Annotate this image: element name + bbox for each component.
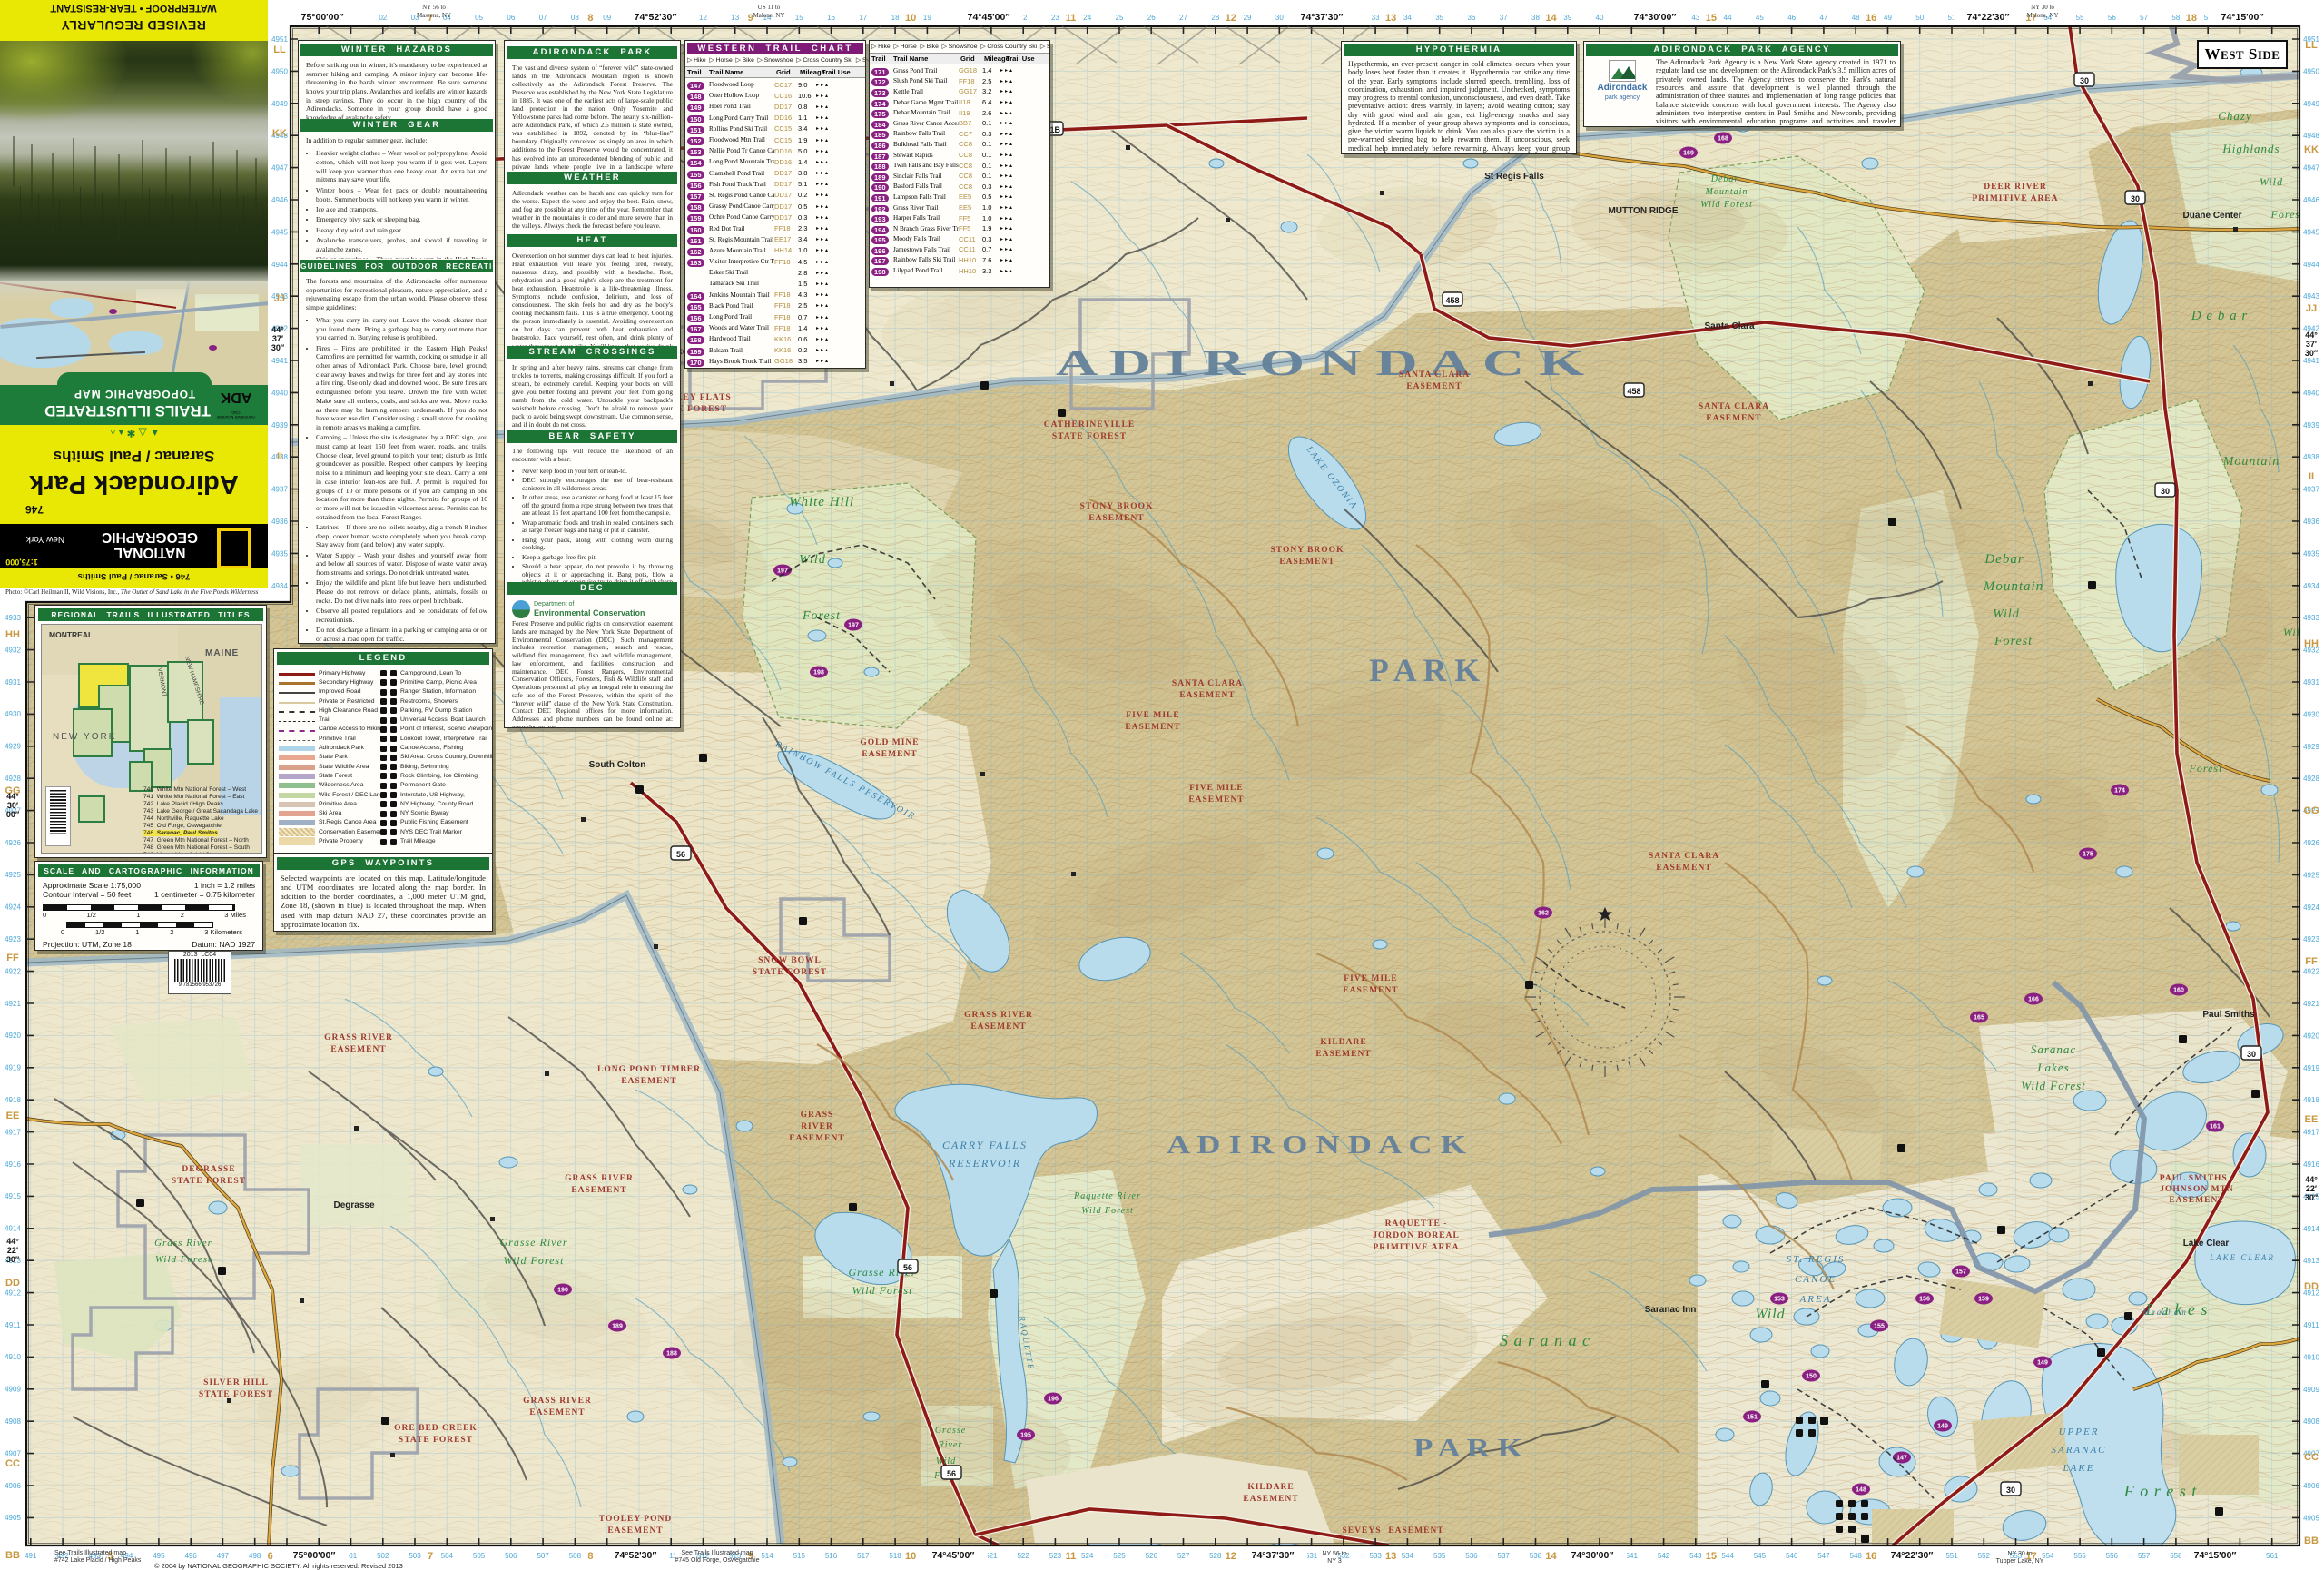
- svg-text:174: 174: [2114, 788, 2125, 795]
- svg-text:74°37'30″: 74°37'30″: [1252, 1550, 1295, 1561]
- svg-text:Mountain: Mountain: [1705, 187, 1748, 197]
- svg-text:NY 56 to: NY 56 to: [1322, 1551, 1346, 1557]
- svg-text:4906: 4906: [2303, 1482, 2319, 1490]
- svg-text:LONG POND TIMBER: LONG POND TIMBER: [597, 1065, 701, 1074]
- svg-text:27: 27: [1179, 14, 1187, 22]
- svg-text:© 2004 by NATIONAL GEOGRAPHIC: © 2004 by NATIONAL GEOGRAPHIC SOCIETY. A…: [154, 1562, 403, 1570]
- svg-text:4917: 4917: [2303, 1129, 2319, 1137]
- svg-text:543: 543: [1689, 1552, 1702, 1560]
- svg-text:18: 18: [2186, 13, 2197, 24]
- svg-text:537: 537: [1498, 1552, 1511, 1560]
- svg-text:4921: 4921: [2303, 1000, 2319, 1008]
- svg-text:4934: 4934: [2303, 582, 2319, 590]
- svg-text:Wild: Wild: [1755, 1307, 1785, 1322]
- svg-text:4939: 4939: [2303, 421, 2319, 430]
- svg-text:Grasse River: Grasse River: [500, 1236, 568, 1249]
- svg-text:EASEMENT: EASEMENT: [571, 1186, 626, 1195]
- svg-text:160: 160: [2173, 988, 2184, 994]
- svg-text:DEGRASSE: DEGRASSE: [182, 1165, 235, 1174]
- svg-text:8: 8: [587, 1551, 593, 1562]
- svg-text:St Regis Falls: St Regis Falls: [1484, 172, 1544, 182]
- svg-text:P A R K: P A R K: [1369, 652, 1480, 688]
- svg-text:6: 6: [268, 1551, 273, 1562]
- svg-text:EASEMENT: EASEMENT: [1188, 795, 1244, 805]
- svg-text:516: 516: [825, 1552, 838, 1560]
- svg-text:169: 169: [1683, 151, 1694, 157]
- svg-text:4929: 4929: [5, 743, 21, 751]
- svg-text:23: 23: [1051, 14, 1059, 22]
- svg-text:STONY BROOK: STONY BROOK: [1080, 502, 1154, 511]
- svg-text:58: 58: [2171, 14, 2180, 22]
- svg-text:7: 7: [428, 1551, 433, 1562]
- svg-text:4944: 4944: [271, 261, 288, 269]
- svg-text:Debar: Debar: [1710, 174, 1739, 184]
- svg-text:STATE FOREST: STATE FOREST: [1052, 432, 1127, 441]
- svg-text:150: 150: [1806, 1374, 1817, 1380]
- svg-text:14: 14: [1545, 13, 1557, 24]
- svg-text:LAKE: LAKE: [2063, 1463, 2095, 1474]
- svg-text:525: 525: [1113, 1552, 1126, 1560]
- svg-text:HH: HH: [2304, 638, 2319, 649]
- svg-text:155: 155: [1874, 1324, 1885, 1330]
- svg-text:EASEMENT: EASEMENT: [1125, 723, 1180, 732]
- svg-text:TOOLEY POND: TOOLEY POND: [599, 1515, 672, 1524]
- svg-text:4949: 4949: [2303, 100, 2319, 108]
- svg-text:FF: FF: [2305, 956, 2318, 967]
- svg-text:4936: 4936: [2303, 518, 2319, 526]
- svg-text:F o r e s t: F o r e s t: [2123, 1482, 2198, 1500]
- svg-text:FF: FF: [6, 953, 19, 963]
- svg-text:SILVER HILL: SILVER HILL: [203, 1378, 269, 1387]
- svg-text:4941: 4941: [271, 357, 288, 365]
- svg-text:165: 165: [1974, 1015, 1984, 1022]
- svg-text:KILDARE: KILDARE: [1320, 1038, 1366, 1047]
- svg-text:Degrasse: Degrasse: [333, 1200, 374, 1210]
- svg-text:30: 30: [2131, 194, 2140, 203]
- svg-text:33: 33: [1372, 14, 1380, 22]
- svg-text:15: 15: [795, 14, 803, 22]
- svg-text:South Colton: South Colton: [589, 760, 646, 770]
- svg-text:EASEMENT: EASEMENT: [529, 1408, 585, 1417]
- svg-text:NY 56 to: NY 56 to: [422, 4, 446, 11]
- svg-text:Forest: Forest: [2189, 762, 2223, 775]
- svg-text:162: 162: [1538, 911, 1549, 917]
- svg-text:CANOE: CANOE: [1795, 1274, 1837, 1285]
- svg-text:Mountain: Mountain: [2222, 455, 2280, 469]
- svg-text:GRASS RIVER: GRASS RIVER: [324, 1033, 393, 1042]
- svg-text:GRASS RIVER: GRASS RIVER: [523, 1397, 592, 1406]
- svg-text:24: 24: [1083, 14, 1091, 22]
- svg-text:RESERVOIR: RESERVOIR: [948, 1157, 1021, 1170]
- svg-text:30′: 30′: [7, 801, 18, 810]
- svg-text:30″: 30″: [6, 1255, 20, 1264]
- svg-text:4936: 4936: [271, 518, 288, 526]
- svg-text:30: 30: [2247, 1050, 2256, 1059]
- svg-text:508: 508: [569, 1552, 582, 1560]
- svg-text:Forest: Forest: [802, 609, 841, 623]
- svg-text:River: River: [938, 1440, 963, 1450]
- svg-text:13: 13: [731, 14, 739, 22]
- svg-text:531: 531: [1305, 1552, 1318, 1560]
- svg-text:11: 11: [1066, 13, 1077, 24]
- svg-text:EASEMENT: EASEMENT: [1343, 986, 1398, 995]
- svg-text:13: 13: [1385, 1551, 1396, 1562]
- svg-text:198: 198: [813, 670, 824, 676]
- svg-text:PRIMITIVE AREA: PRIMITIVE AREA: [1972, 194, 2058, 203]
- svg-text:491: 491: [25, 1552, 37, 1560]
- svg-text:LAKE CLEAR: LAKE CLEAR: [2209, 1253, 2275, 1262]
- svg-text:4922: 4922: [5, 967, 21, 975]
- svg-text:EASEMENT: EASEMENT: [1706, 414, 1761, 423]
- svg-text:DD: DD: [5, 1278, 20, 1289]
- svg-text:4946: 4946: [271, 196, 288, 204]
- svg-text:161: 161: [2210, 1124, 2221, 1131]
- svg-text:Grass River: Grass River: [154, 1238, 212, 1249]
- svg-text:White Hill: White Hill: [789, 495, 854, 509]
- svg-text:4929: 4929: [2303, 743, 2319, 751]
- svg-text:56: 56: [947, 1469, 956, 1478]
- svg-text:56: 56: [903, 1263, 912, 1272]
- svg-text:Mountain: Mountain: [1983, 579, 2043, 594]
- svg-text:Paul Smiths: Paul Smiths: [2202, 1010, 2255, 1020]
- svg-text:06: 06: [507, 14, 515, 22]
- svg-text:4923: 4923: [2303, 935, 2319, 943]
- svg-text:30: 30: [1275, 14, 1284, 22]
- svg-text:542: 542: [1658, 1552, 1670, 1560]
- svg-text:CATHERINEVILLE: CATHERINEVILLE: [1044, 420, 1135, 430]
- svg-text:4916: 4916: [5, 1160, 21, 1169]
- svg-text:Malone, NY: Malone, NY: [753, 12, 785, 19]
- svg-text:4916: 4916: [2303, 1160, 2319, 1169]
- svg-text:189: 189: [612, 1324, 623, 1330]
- svg-text:HH: HH: [5, 629, 20, 640]
- svg-text:STATE FOREST: STATE FOREST: [172, 1177, 246, 1186]
- svg-text:496: 496: [184, 1552, 197, 1560]
- svg-text:4926: 4926: [5, 839, 21, 847]
- svg-text:KILDARE: KILDARE: [1247, 1483, 1294, 1492]
- svg-text:Chazy: Chazy: [2218, 109, 2252, 123]
- svg-text:4945: 4945: [271, 228, 288, 236]
- svg-text:514: 514: [761, 1552, 773, 1560]
- svg-text:10: 10: [905, 13, 916, 24]
- svg-text:ORE BED CREEK: ORE BED CREEK: [394, 1424, 478, 1433]
- svg-text:26: 26: [1147, 14, 1156, 22]
- svg-text:JOHNSON MTN: JOHNSON MTN: [2160, 1185, 2233, 1194]
- svg-text:4919: 4919: [2303, 1064, 2319, 1072]
- svg-text:Wild Forest: Wild Forest: [155, 1254, 212, 1265]
- svg-text:GG: GG: [2303, 805, 2319, 816]
- svg-text:15: 15: [1706, 13, 1717, 24]
- svg-text:EASEMENT: EASEMENT: [330, 1045, 386, 1054]
- svg-text:EASEMENT: EASEMENT: [1243, 1495, 1298, 1504]
- svg-text:507: 507: [537, 1552, 549, 1560]
- svg-text:4930: 4930: [5, 710, 21, 718]
- svg-text:4922: 4922: [2303, 968, 2319, 976]
- svg-text:4940: 4940: [271, 389, 288, 397]
- svg-text:197: 197: [777, 568, 788, 575]
- svg-text:45: 45: [1756, 14, 1764, 22]
- svg-text:526: 526: [1146, 1552, 1158, 1560]
- svg-text:S a r a n a c: S a r a n a c: [1500, 1331, 1590, 1349]
- svg-text:EASEMENT: EASEMENT: [1656, 864, 1711, 873]
- svg-text:Wild: Wild: [1993, 607, 2020, 621]
- svg-text:75°00'00″: 75°00'00″: [301, 12, 344, 23]
- svg-text:4926: 4926: [2303, 839, 2319, 847]
- svg-text:ST. REGIS: ST. REGIS: [1787, 1254, 1846, 1265]
- svg-text:536: 536: [1465, 1552, 1478, 1560]
- svg-text:17: 17: [859, 14, 867, 22]
- svg-text:JORDON BOREAL: JORDON BOREAL: [1373, 1231, 1460, 1240]
- svg-text:74°22'30″: 74°22'30″: [1891, 1550, 1934, 1561]
- svg-text:196: 196: [1048, 1397, 1059, 1403]
- svg-text:37: 37: [1500, 14, 1508, 22]
- svg-text:552: 552: [1978, 1552, 1991, 1560]
- svg-text:Wild Forest: Wild Forest: [852, 1284, 913, 1297]
- svg-text:US 11 to: US 11 to: [758, 4, 781, 11]
- svg-text:4925: 4925: [5, 871, 21, 879]
- svg-text:13: 13: [1385, 13, 1396, 24]
- svg-text:518: 518: [889, 1552, 901, 1560]
- svg-text:148: 148: [1856, 1487, 1866, 1494]
- svg-text:Grasse: Grasse: [935, 1426, 966, 1436]
- svg-text:EASEMENT: EASEMENT: [607, 1526, 663, 1535]
- svg-text:DEER RIVER: DEER RIVER: [1984, 183, 2046, 192]
- svg-text:4931: 4931: [2303, 678, 2319, 686]
- svg-text:44: 44: [1724, 14, 1732, 22]
- svg-text:4907: 4907: [5, 1449, 21, 1457]
- svg-text:57: 57: [2140, 14, 2148, 22]
- svg-text:4905: 4905: [5, 1514, 21, 1522]
- svg-text:P A R K: P A R K: [1413, 1434, 1523, 1463]
- svg-text:4934: 4934: [271, 582, 288, 590]
- svg-text:11: 11: [1066, 1551, 1077, 1562]
- svg-text:149: 149: [1937, 1424, 1948, 1430]
- svg-text:II: II: [277, 451, 282, 462]
- svg-text:541: 541: [1626, 1552, 1639, 1560]
- svg-text:37′: 37′: [2306, 340, 2317, 349]
- svg-text:44°: 44°: [2305, 1175, 2318, 1184]
- svg-text:4928: 4928: [5, 775, 21, 783]
- svg-text:4911: 4911: [5, 1321, 21, 1329]
- svg-text:4914: 4914: [5, 1225, 21, 1233]
- svg-text:4951: 4951: [271, 35, 288, 44]
- svg-text:44°: 44°: [271, 325, 284, 334]
- svg-text:II: II: [2309, 471, 2314, 482]
- svg-text:551: 551: [1945, 1552, 1958, 1560]
- svg-text:4908: 4908: [5, 1417, 21, 1426]
- svg-text:557: 557: [2138, 1552, 2151, 1560]
- svg-text:4930: 4930: [2303, 710, 2319, 718]
- svg-text:SANTA CLARA: SANTA CLARA: [1172, 679, 1243, 688]
- svg-text:546: 546: [1786, 1552, 1798, 1560]
- svg-text:EASEMENT: EASEMENT: [862, 750, 917, 759]
- svg-text:JJ: JJ: [274, 293, 285, 304]
- svg-text:09: 09: [603, 14, 611, 22]
- svg-text:Highlands: Highlands: [2221, 142, 2280, 155]
- svg-text:50: 50: [1915, 14, 1924, 22]
- svg-text:BB: BB: [2304, 1535, 2319, 1546]
- svg-text:Wild Forest: Wild Forest: [2021, 1079, 2086, 1092]
- svg-text:EASEMENT: EASEMENT: [1279, 558, 1334, 567]
- svg-text:159: 159: [1978, 1297, 1989, 1303]
- svg-text:561: 561: [2266, 1552, 2279, 1560]
- svg-text:46: 46: [1787, 14, 1796, 22]
- svg-text:74°52'30″: 74°52'30″: [615, 1550, 657, 1561]
- svg-text:Raquette River: Raquette River: [1073, 1191, 1141, 1201]
- svg-text:156: 156: [1919, 1297, 1930, 1303]
- svg-text:STATE FOREST: STATE FOREST: [399, 1436, 473, 1445]
- svg-text:Wild Forest: Wild Forest: [504, 1254, 565, 1267]
- svg-text:44°: 44°: [2305, 331, 2318, 340]
- svg-text:EASEMENT: EASEMENT: [1315, 1050, 1371, 1059]
- svg-text:Forest: Forest: [1994, 635, 2033, 648]
- svg-text:GRASS RIVER: GRASS RIVER: [964, 1011, 1033, 1020]
- svg-text:Lake Clear: Lake Clear: [2183, 1239, 2230, 1249]
- svg-text:SANTA CLARA: SANTA CLARA: [1399, 370, 1470, 380]
- svg-text:4906: 4906: [5, 1482, 21, 1490]
- svg-text:EASEMENT: EASEMENT: [1388, 1526, 1443, 1535]
- svg-text:PAUL SMITHS -: PAUL SMITHS -: [2160, 1174, 2235, 1183]
- svg-text:SANTA CLARA: SANTA CLARA: [1699, 402, 1769, 411]
- svg-text:KK: KK: [272, 128, 287, 139]
- svg-text:4909: 4909: [5, 1386, 21, 1394]
- svg-text:02: 02: [379, 14, 387, 22]
- svg-text:SNOW BOWL: SNOW BOWL: [758, 956, 822, 965]
- svg-text:Massena, NY: Massena, NY: [417, 12, 451, 19]
- svg-text:517: 517: [857, 1552, 870, 1560]
- svg-text:4944: 4944: [2303, 261, 2319, 269]
- svg-text:522: 522: [1017, 1552, 1029, 1560]
- svg-text:FIVE MILE: FIVE MILE: [1189, 784, 1243, 793]
- svg-text:4940: 4940: [2303, 389, 2319, 397]
- svg-text:29: 29: [1244, 14, 1252, 22]
- svg-text:4939: 4939: [271, 421, 288, 430]
- svg-text:505: 505: [473, 1552, 486, 1560]
- svg-text:KK: KK: [2304, 144, 2319, 155]
- svg-text:A D I R O N D A C K: A D I R O N D A C K: [1056, 342, 1584, 383]
- svg-text:SEVEYS: SEVEYS: [1343, 1526, 1382, 1535]
- svg-text:4950: 4950: [2303, 67, 2319, 75]
- svg-text:Saranac Inn: Saranac Inn: [1645, 1305, 1697, 1315]
- svg-text:Lakes: Lakes: [2036, 1061, 2069, 1074]
- svg-text:527: 527: [1177, 1552, 1190, 1560]
- svg-text:UPPER: UPPER: [2059, 1427, 2100, 1437]
- svg-text:05: 05: [475, 14, 483, 22]
- svg-text:188: 188: [666, 1351, 677, 1358]
- svg-text:74°37'30″: 74°37'30″: [1301, 12, 1344, 23]
- svg-text:4946: 4946: [2303, 196, 2319, 204]
- svg-text:08: 08: [571, 14, 579, 22]
- svg-text:STATE FOREST: STATE FOREST: [199, 1390, 273, 1399]
- svg-text:15: 15: [1706, 1551, 1717, 1562]
- svg-text:458: 458: [1627, 387, 1640, 396]
- svg-text:4912: 4912: [5, 1289, 21, 1297]
- svg-text:528: 528: [1209, 1552, 1222, 1560]
- svg-text:535: 535: [1433, 1552, 1446, 1560]
- svg-text:NY 3: NY 3: [1327, 1558, 1342, 1565]
- svg-text:NY 30 to: NY 30 to: [2007, 1551, 2032, 1557]
- svg-text:547: 547: [1817, 1552, 1830, 1560]
- svg-text:See Trails Illustrated map: See Trails Illustrated map: [682, 1550, 753, 1556]
- svg-text:4947: 4947: [2303, 164, 2319, 173]
- svg-text:555: 555: [2073, 1552, 2086, 1560]
- svg-text:4909: 4909: [2303, 1386, 2319, 1394]
- svg-text:4913: 4913: [2303, 1257, 2319, 1265]
- svg-text:56: 56: [2108, 14, 2116, 22]
- svg-text:74°45'00″: 74°45'00″: [932, 1550, 975, 1561]
- svg-text:CARRY FALLS: CARRY FALLS: [942, 1139, 1028, 1151]
- svg-text:A D I R O N D A C K: A D I R O N D A C K: [1167, 1131, 1467, 1160]
- svg-text:74°30'00″: 74°30'00″: [1634, 12, 1677, 23]
- svg-text:RAQUETTE -: RAQUETTE -: [1385, 1219, 1448, 1229]
- svg-text:4937: 4937: [271, 486, 288, 494]
- svg-text:44°: 44°: [6, 792, 19, 801]
- svg-text:4941: 4941: [2303, 357, 2319, 365]
- svg-text:See Trails Illustrated map: See Trails Illustrated map: [54, 1550, 126, 1556]
- svg-text:DD: DD: [2304, 1281, 2319, 1292]
- svg-text:4947: 4947: [271, 164, 288, 173]
- svg-text:GRASS: GRASS: [801, 1111, 834, 1120]
- svg-text:Santa Clara: Santa Clara: [1704, 321, 1754, 331]
- svg-text:Tupper Lake, NY: Tupper Lake, NY: [1996, 1558, 2044, 1565]
- svg-text:4917: 4917: [5, 1128, 21, 1136]
- svg-text:4945: 4945: [2303, 228, 2319, 236]
- svg-text:EASEMENT: EASEMENT: [1088, 514, 1144, 523]
- svg-text:151: 151: [1747, 1415, 1758, 1421]
- svg-text:4923: 4923: [5, 935, 21, 943]
- svg-text:Wild Forest: Wild Forest: [1081, 1206, 1134, 1216]
- svg-text:GRASS RIVER: GRASS RIVER: [565, 1174, 634, 1183]
- svg-text:JJ: JJ: [2306, 303, 2317, 314]
- svg-text:18: 18: [891, 14, 900, 22]
- svg-text:EASEMENT: EASEMENT: [970, 1022, 1026, 1032]
- svg-text:4932: 4932: [5, 646, 21, 654]
- svg-text:12: 12: [1226, 1551, 1236, 1562]
- svg-text:4937: 4937: [2303, 486, 2319, 494]
- svg-text:166: 166: [2028, 997, 2039, 1003]
- svg-text:47: 47: [1819, 14, 1827, 22]
- svg-text:175: 175: [2083, 852, 2093, 858]
- svg-text:NY 30 to: NY 30 to: [2031, 4, 2054, 11]
- svg-text:4918: 4918: [5, 1096, 21, 1104]
- svg-text:190: 190: [557, 1288, 568, 1294]
- svg-text:FIVE MILE: FIVE MILE: [1344, 974, 1397, 983]
- svg-text:48: 48: [1852, 14, 1860, 22]
- svg-text:#745 Old Forge, Oswegatchie: #745 Old Forge, Oswegatchie: [675, 1557, 760, 1564]
- svg-text:556: 556: [2106, 1552, 2119, 1560]
- svg-text:4938: 4938: [2303, 453, 2319, 461]
- svg-text:FIVE MILE: FIVE MILE: [1126, 711, 1179, 720]
- svg-text:4933: 4933: [2303, 614, 2319, 622]
- svg-text:16: 16: [1866, 13, 1876, 24]
- svg-text:12: 12: [1226, 13, 1236, 24]
- svg-text:EASEMENT: EASEMENT: [1406, 382, 1462, 391]
- svg-text:38: 38: [1531, 14, 1540, 22]
- svg-text:4948: 4948: [2303, 132, 2319, 140]
- svg-text:EASEMENT: EASEMENT: [621, 1077, 676, 1086]
- svg-text:195: 195: [1020, 1433, 1031, 1439]
- svg-text:8: 8: [587, 13, 593, 24]
- svg-text:544: 544: [1721, 1552, 1734, 1560]
- svg-text:00″: 00″: [6, 810, 20, 819]
- svg-text:157: 157: [1955, 1269, 1966, 1276]
- svg-text:Wild: Wild: [2260, 175, 2283, 188]
- svg-text:4925: 4925: [2303, 871, 2319, 879]
- svg-text:CC: CC: [5, 1458, 20, 1469]
- svg-text:30″: 30″: [2305, 349, 2319, 358]
- svg-text:4915: 4915: [5, 1192, 21, 1200]
- svg-text:Wild: Wild: [799, 553, 826, 567]
